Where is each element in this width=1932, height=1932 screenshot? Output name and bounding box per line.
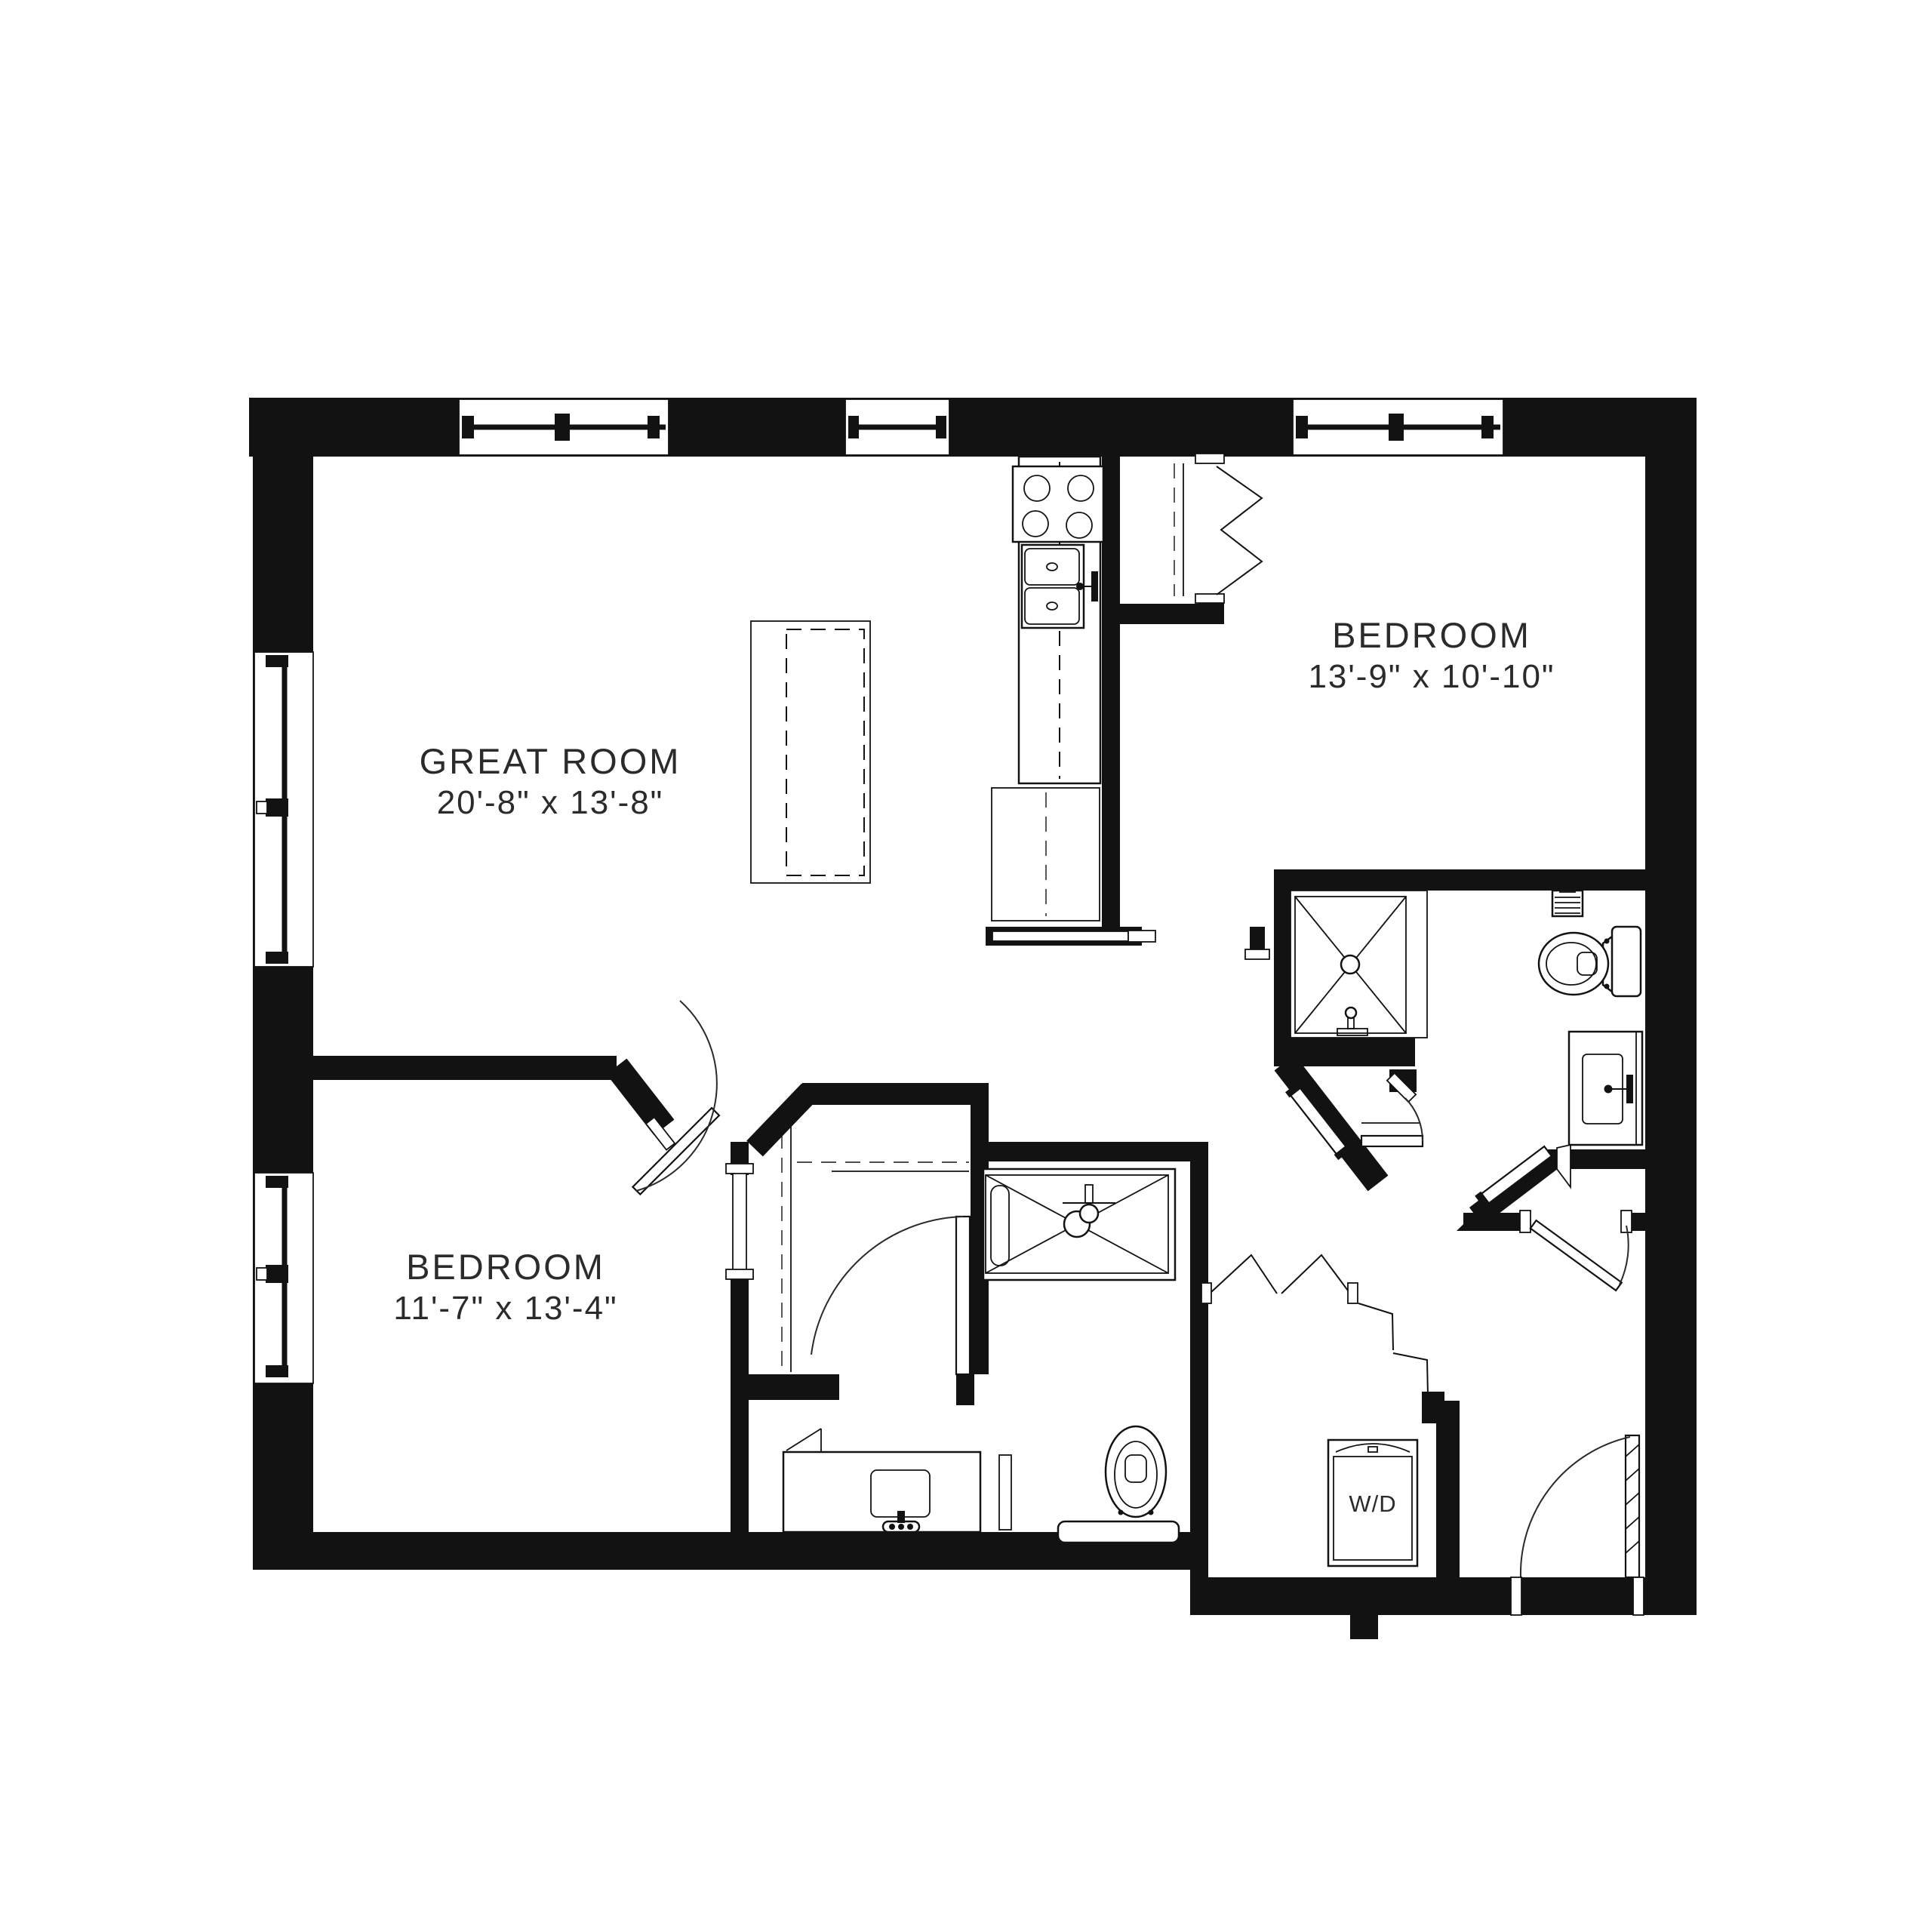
laundry-label: W/D	[1349, 1491, 1396, 1517]
pocket-door-edge	[1128, 931, 1155, 942]
closet2-door	[811, 1217, 970, 1374]
wall-laundry-east	[1436, 1401, 1460, 1577]
wall-bath2-north	[983, 1142, 1190, 1161]
jamb-closet1-top	[1195, 454, 1224, 463]
pocket-door-closet2	[733, 1172, 746, 1271]
wall-vestibule-south-right	[1632, 1213, 1645, 1231]
wall-closet1-south	[1120, 604, 1200, 624]
toilet2-icon	[1058, 1426, 1179, 1543]
wall-bath2-east	[1190, 1142, 1208, 1532]
bedroom-right-dims: 13'-9" x 10'-10"	[1308, 658, 1555, 695]
bedroom-left-dims: 11'-7" x 13'-4"	[393, 1290, 617, 1327]
great-room-label: GREAT ROOM	[420, 741, 681, 781]
jamb-laundry-left	[1201, 1283, 1211, 1303]
wall-closet2-south	[749, 1374, 839, 1400]
windows	[254, 399, 1503, 1383]
wall-bath1-west	[1274, 891, 1291, 1039]
washer-dryer-icon: W/D	[1328, 1440, 1417, 1566]
vanity-corner-detail	[1557, 1145, 1571, 1187]
bifold-laundry-a2	[1281, 1255, 1348, 1294]
laundry-foyer: W/D	[1201, 1255, 1644, 1615]
kitchen-island-icon	[751, 621, 870, 883]
wall-bottom-right-section	[1208, 1577, 1697, 1615]
bedroom-left-closet	[782, 1109, 970, 1374]
toilet-icon	[1539, 927, 1641, 996]
jamb-foyer-left	[1520, 1211, 1531, 1232]
linen-door	[1361, 1098, 1423, 1146]
refrigerator-icon	[992, 788, 1100, 921]
wall-closet1-stub-top	[1198, 436, 1221, 456]
wall-left	[253, 398, 313, 1570]
kitchen	[751, 457, 1103, 921]
wall-greatroom-angle	[617, 1066, 664, 1128]
jamb-closet1-bottom	[1195, 594, 1224, 603]
floor-plan-canvas: W/D GREAT ROOM 20'-8" x 13'-8" BEDROOM 1…	[0, 0, 1932, 1932]
wall-right	[1645, 398, 1697, 1615]
jamb-laundry-diag-stub	[1422, 1392, 1444, 1423]
bifold-doors-closet1	[1217, 466, 1262, 595]
wall-closet2-hinge-stub	[956, 1374, 974, 1405]
interior-walls	[313, 436, 1645, 1577]
wall-kitchen-east	[1102, 457, 1120, 927]
cooktop-icon	[1013, 466, 1103, 542]
shower-icon	[1291, 891, 1427, 1038]
window-top-great-room	[459, 399, 669, 455]
bathtub-icon	[983, 1169, 1175, 1280]
wall-vestibule-south	[1463, 1213, 1520, 1231]
jamb-closet2-pocket-top	[726, 1164, 753, 1174]
window-left-great-room	[254, 652, 313, 967]
window-top-kitchen	[845, 399, 949, 455]
bifold-laundry-b2	[1393, 1353, 1428, 1396]
window-left-bedroom	[254, 1173, 313, 1383]
foyer-inner-door	[1531, 1220, 1629, 1291]
wall-pier	[1350, 1615, 1378, 1639]
bathroom-1	[1285, 886, 1642, 1187]
jamb-closet2-pocket-bottom	[726, 1269, 753, 1279]
pocket-strike-stub	[1250, 927, 1265, 952]
vanity2-sink-icon	[783, 1429, 1011, 1532]
jamb-entry-right	[1633, 1577, 1644, 1615]
bedroom-left-label: BEDROOM	[406, 1247, 605, 1287]
bifold-laundry-a1	[1211, 1255, 1277, 1294]
vent-grille-icon	[1552, 886, 1583, 916]
wall-greatroom-south	[313, 1056, 617, 1080]
wall-bottom-step	[1190, 1532, 1208, 1615]
bedroom-right-closet	[1174, 463, 1262, 596]
jamb-laundry-mid	[1348, 1283, 1358, 1303]
pocket-door-cavity	[992, 931, 1128, 941]
wall-bed2-east-lower	[731, 1271, 749, 1532]
jamb-entry-left	[1511, 1577, 1521, 1615]
window-top-bedroom	[1293, 399, 1503, 455]
bifold-laundry-b1	[1358, 1303, 1393, 1350]
pocket-strike-cap	[1245, 949, 1269, 959]
great-room-dims: 20'-8" x 13'-8"	[437, 784, 664, 821]
bedroom-right-label: BEDROOM	[1332, 615, 1531, 655]
wall-bed1-bath-divider	[1274, 869, 1645, 891]
wall-closet2-north	[802, 1083, 989, 1105]
